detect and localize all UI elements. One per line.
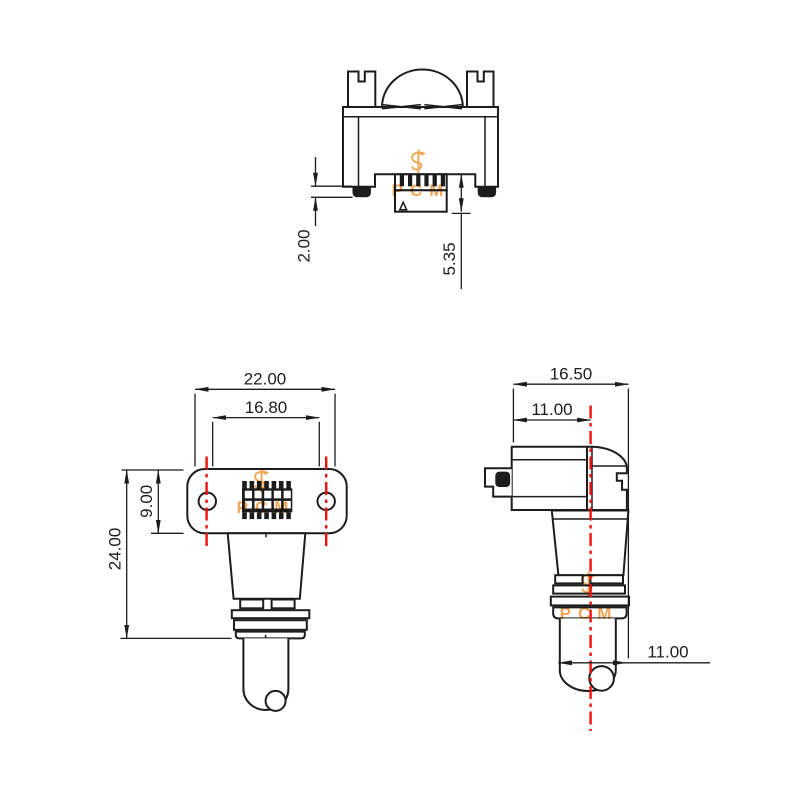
dim-text-cable-offset: 11.00	[647, 643, 688, 662]
side-body-outline	[512, 447, 627, 510]
watermark-text: PCM	[392, 181, 451, 200]
front-view: 22.00 16.80 9.00 24.00	[106, 370, 347, 711]
dimension-inner-width: 16.80	[213, 398, 320, 467]
side-rib	[590, 575, 623, 583]
boot-rib	[234, 620, 307, 630]
dimension-flange-height: 9.00	[122, 470, 184, 533]
boot-rib-rounded	[236, 632, 305, 639]
mounting-foot-left	[353, 187, 370, 197]
dim-text-inner-width: 16.80	[245, 398, 288, 417]
watermark-text: PCM	[560, 604, 619, 623]
dim-text-foot-height: 2.00	[295, 229, 314, 262]
boot-rib	[240, 600, 263, 609]
watermark-text: PCM	[237, 498, 296, 517]
top-view: 2.00 5.35	[295, 70, 499, 289]
dim-text-overall-depth: 16.50	[550, 365, 593, 384]
boot-rib	[232, 610, 309, 618]
dome-boss	[382, 70, 463, 107]
strain-relief-boot	[228, 533, 306, 599]
side-cable-end-circle	[589, 666, 614, 691]
dim-text-body-height: 24.00	[106, 528, 125, 571]
screw-post-right	[467, 72, 494, 108]
dim-text-shroud-depth: 5.35	[440, 242, 459, 275]
drawing-svg: 2.00 5.35	[0, 0, 800, 800]
cable-end-circle	[266, 691, 286, 711]
screw-post-left	[348, 72, 375, 108]
side-rib	[555, 575, 582, 583]
dim-text-flange-height: 9.00	[137, 485, 156, 518]
boot-rib	[272, 600, 295, 609]
dimension-body-depth: 11.00	[513, 400, 590, 420]
latch-pad	[495, 472, 510, 487]
side-view: 16.50 11.00 11.00	[485, 365, 710, 732]
dim-text-body-depth: 11.00	[531, 400, 572, 419]
dim-text-overall-width: 22.00	[244, 370, 287, 389]
mounting-foot-right	[478, 187, 495, 197]
technical-drawing-canvas: 2.00 5.35	[0, 0, 800, 800]
